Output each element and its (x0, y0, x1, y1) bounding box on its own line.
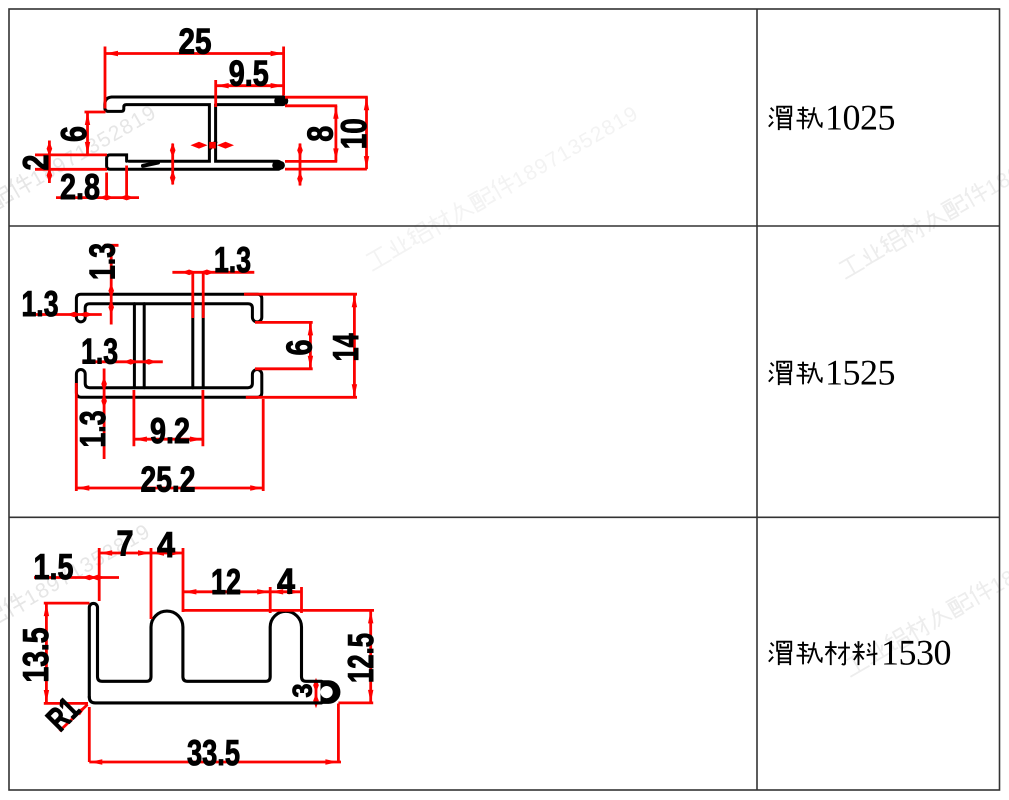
svg-text:14: 14 (325, 333, 366, 361)
svg-text:1530: 1530 (881, 632, 951, 672)
svg-text:9.2: 9.2 (150, 410, 190, 451)
svg-text:9.5: 9.5 (229, 52, 269, 93)
svg-text:6: 6 (53, 126, 94, 142)
svg-text:12.5: 12.5 (340, 633, 381, 683)
svg-text:2: 2 (15, 155, 56, 171)
svg-text:33.5: 33.5 (187, 732, 240, 773)
svg-text:1.3: 1.3 (72, 411, 113, 448)
svg-text:10: 10 (333, 118, 374, 149)
svg-text:25.2: 25.2 (141, 458, 196, 499)
svg-text:1.3: 1.3 (81, 330, 118, 371)
svg-text:1.5: 1.5 (34, 546, 74, 587)
svg-text:1525: 1525 (825, 352, 895, 392)
svg-text:13.5: 13.5 (15, 628, 56, 683)
svg-text:7: 7 (117, 522, 134, 563)
svg-text:12: 12 (211, 561, 241, 602)
svg-text:4: 4 (157, 524, 175, 565)
svg-text:18971352819: 18971352819 (986, 508, 1009, 599)
svg-text:18971352819: 18971352819 (508, 102, 642, 193)
svg-text:1025: 1025 (825, 97, 895, 137)
svg-text:3: 3 (288, 684, 318, 698)
svg-text:6: 6 (278, 340, 319, 356)
svg-text:1.3: 1.3 (81, 243, 122, 280)
svg-text:2.8: 2.8 (60, 166, 100, 207)
svg-text:4: 4 (277, 560, 295, 601)
svg-text:1.3: 1.3 (214, 239, 251, 280)
svg-text:1.3: 1.3 (22, 283, 59, 324)
svg-text:25: 25 (179, 20, 212, 61)
svg-text:18971352819: 18971352819 (981, 110, 1009, 201)
